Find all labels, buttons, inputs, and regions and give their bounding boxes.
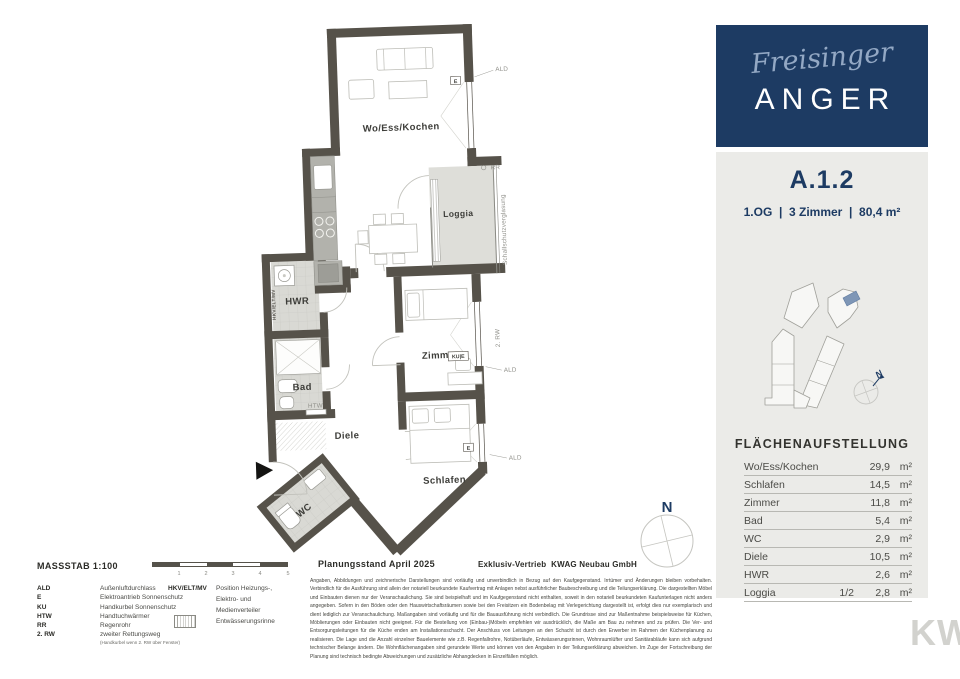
area-row-value: 11,8 (854, 497, 890, 509)
unit-details: 1.OG | 3 Zimmer | 80,4 m² (716, 205, 928, 219)
legend-text: zweiter Rettungsweg (100, 630, 160, 639)
area-row-unit: m² (890, 569, 912, 581)
area-row-value: 29,9 (854, 461, 890, 473)
diele-entry-hatch (271, 421, 326, 451)
room-label-diele: Diele (334, 430, 359, 442)
legend-text: Außenluftdurchlass (100, 584, 156, 593)
unit-id: A.1.2 (716, 166, 928, 195)
e-label-schlafen: E (467, 446, 471, 452)
area-row-unit: m² (890, 479, 912, 491)
area-row-value: 2,9 (854, 533, 890, 545)
area-row-value: 10,5 (854, 551, 890, 563)
drain-channel-label: Entwässerungsrinne (216, 618, 275, 625)
door-arc-bad (325, 364, 350, 389)
sales-info: Exklusiv-Vertrieb KWAG Neubau GmbH (478, 560, 637, 569)
hkv-legend-abbr: HKV/ELT/MV (168, 585, 207, 592)
hkv-label: HKV/ELT/MV (271, 289, 278, 320)
wall-diagonal-2 (352, 498, 397, 553)
room-label-schlafen: Schlafen (423, 474, 466, 486)
kue-label: KU|E (452, 354, 465, 360)
area-row: Diele10,5m² (744, 548, 912, 566)
area-row: Loggia1/22,8m² (744, 584, 912, 602)
legend-abbr: KU (37, 603, 100, 612)
area-row: HWR2,6m² (744, 566, 912, 584)
htw-label: HTW (308, 402, 323, 410)
scale-tick: 3 (228, 571, 238, 577)
planning-status: Planungsstand April 2025 (318, 559, 435, 569)
keyplan-building-1 (784, 283, 819, 328)
keyplan-building-3 (765, 329, 794, 405)
brand-name: ANGER (716, 83, 928, 117)
room-label-living: Wo/Ess/Kochen (363, 121, 440, 135)
keyplan-compass-n: N (873, 368, 884, 380)
legend-text: Regenrohr (100, 621, 131, 630)
area-row-label: Bad (744, 515, 824, 527)
legend-row: HTWHandtuchwärmer (37, 612, 183, 621)
legend-row: RRRegenrohr (37, 621, 183, 630)
site-keyplan: N (740, 268, 910, 423)
scale-tick: 5 (283, 571, 293, 577)
legend-abbr: 2. RW (37, 630, 100, 639)
ald-label-3: ALD (509, 454, 522, 461)
area-row-label: Wo/Ess/Kochen (744, 461, 824, 473)
area-table-title: FLÄCHENAUFSTELLUNG (716, 437, 928, 451)
plan-drawing: WC (241, 23, 525, 557)
ald-label-2: ALD (504, 367, 517, 374)
brand-logo: Freisinger ANGER (716, 25, 928, 147)
room-label-bad: Bad (292, 382, 312, 394)
area-row-value: 5,4 (854, 515, 890, 527)
area-row-value: 2,8 (854, 587, 890, 599)
e-label-living: E (454, 79, 458, 85)
bad-toilet (280, 396, 294, 408)
ald-label-1: ALD (495, 66, 508, 73)
legend-row: EElektroantrieb Sonnenschutz (37, 593, 183, 602)
area-row: Bad5,4m² (744, 512, 912, 530)
scale-bar (152, 562, 288, 567)
plan-compass-n: N (662, 499, 673, 516)
scale-tick: 1 (174, 571, 184, 577)
door-leaf-living (355, 244, 356, 272)
window-living (440, 82, 477, 149)
scale-label: MASSSTAB 1:100 (37, 561, 118, 571)
legend-row: KUHandkurbel Sonnenschutz (37, 603, 183, 612)
room-label-loggia: Loggia (443, 208, 474, 219)
loggia-door-arc (397, 176, 430, 209)
floorplan-sheet: WC (0, 0, 960, 679)
legend-abbr: E (37, 593, 100, 602)
kitchen-counter (310, 156, 342, 286)
room-label-hwr: HWR (285, 296, 309, 308)
area-row-unit: m² (890, 497, 912, 509)
brand-script: Freisinger (715, 34, 929, 83)
scale-tick: 2 (201, 571, 211, 577)
abbreviation-legend: ALDAußenluftdurchlass EElektroantrieb So… (37, 584, 183, 640)
area-row: Wo/Ess/Kochen29,9m² (744, 458, 912, 476)
legend-row: 2. RWzweiter Rettungsweg (37, 630, 183, 639)
area-row-value: 2,6 (854, 569, 890, 581)
legend-abbr: HTW (37, 612, 100, 621)
area-row-factor: 1/2 (824, 587, 854, 599)
plan-compass: N (641, 499, 693, 567)
wc-room: WC (262, 458, 355, 547)
area-row-unit: m² (890, 551, 912, 563)
legend-row: ALDAußenluftdurchlass (37, 584, 183, 593)
door-arc-zimmer (372, 337, 401, 366)
area-row-label: Loggia (744, 587, 824, 599)
area-row-unit: m² (890, 461, 912, 473)
area-table: Wo/Ess/Kochen29,9m² Schlafen14,5m² Zimme… (744, 458, 912, 602)
area-row-label: HWR (744, 569, 824, 581)
rr-label: RR (491, 164, 501, 171)
legend-text: Handkurbel Sonnenschutz (100, 603, 176, 612)
hkv-legend-text: Position Heizungs-, Elektro- und Medienv… (216, 584, 280, 616)
area-row-label: Schlafen (744, 479, 824, 491)
entrance-arrow (256, 461, 274, 480)
towel-radiator (306, 409, 326, 415)
legend-text: Elektroantrieb Sonnenschutz (100, 593, 183, 602)
kitchen-sink (314, 165, 333, 190)
drain-channel-symbol (174, 615, 196, 628)
scale-tick: 4 (255, 571, 265, 577)
floor-plan: WC (0, 0, 710, 580)
keyplan-compass: N (854, 368, 885, 404)
hwr-washer (274, 265, 295, 286)
area-row-label: Diele (744, 551, 824, 563)
area-row-value: 14,5 (854, 479, 890, 491)
area-row: Zimmer11,8m² (744, 494, 912, 512)
legal-disclaimer: Angaben, Abbildungen und zeichnerische D… (310, 577, 712, 661)
area-row-label: Zimmer (744, 497, 824, 509)
area-row-label: WC (744, 533, 824, 545)
schlafen-furniture (409, 404, 471, 463)
door-leaf-zimmer (373, 365, 401, 366)
legend-abbr: ALD (37, 584, 100, 593)
area-row-unit: m² (890, 587, 912, 599)
rw-label: 2. RW (494, 329, 502, 348)
kwag-corner-logo: KW (910, 612, 960, 654)
area-row-unit: m² (890, 515, 912, 527)
legend-text: Handtuchwärmer (100, 612, 150, 621)
zimmer-furniture (405, 288, 482, 387)
legend-note: (Handkurbel wenn 2. RW über Fenster) (100, 640, 180, 645)
area-row-unit: m² (890, 533, 912, 545)
area-row: Schlafen14,5m² (744, 476, 912, 494)
bad-shower (276, 339, 321, 375)
legend-abbr: RR (37, 621, 100, 630)
area-row: WC2,9m² (744, 530, 912, 548)
living-furniture (348, 47, 440, 265)
glazing-label: Schallschutzverglasung (500, 194, 509, 265)
